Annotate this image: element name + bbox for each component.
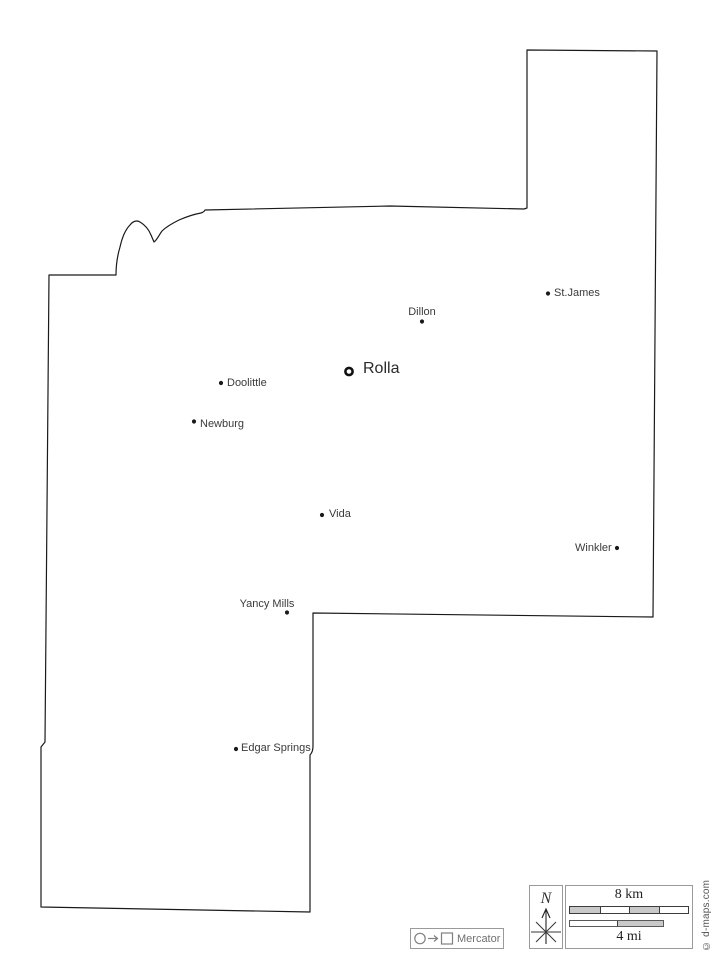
copyright-credit: © d-maps.com: [701, 869, 712, 951]
city-label-vida: Vida: [329, 508, 351, 521]
scale-segment: [659, 907, 689, 913]
city-dot-stjames: [546, 291, 550, 295]
city-label-winkler: Winkler: [575, 542, 612, 555]
scale-segment: [617, 921, 664, 926]
scale-segment: [570, 921, 617, 926]
scale-segment: [600, 907, 630, 913]
county-map-canvas: [0, 0, 713, 957]
city-label-dillon: Dillon: [408, 306, 436, 319]
projection-icon: [411, 929, 455, 948]
scale-bar-km: [569, 906, 689, 914]
map-page: Rolla Dillon St.James Doolittle Newburg …: [0, 0, 713, 957]
city-label-stjames: St.James: [554, 287, 600, 300]
city-dot-edgar-springs: [234, 747, 238, 751]
city-label-doolittle: Doolittle: [227, 377, 267, 390]
county-boundary-outline: [41, 50, 657, 912]
scale-km-label: 8 km: [615, 886, 643, 903]
scale-mi-label: 4 mi: [616, 928, 641, 945]
scale-bar-box: 8 km 4 mi: [565, 885, 693, 949]
scale-segment: [570, 907, 600, 913]
city-dot-doolittle: [219, 381, 223, 385]
north-arrow-icon: N: [530, 886, 562, 948]
city-label-edgar-springs: Edgar Springs: [241, 742, 311, 755]
city-marker-rolla: [345, 368, 352, 375]
projection-box: Mercator: [410, 928, 504, 949]
scale-segment: [629, 907, 659, 913]
city-label-newburg: Newburg: [200, 418, 244, 431]
city-dot-yancy-mills: [285, 610, 289, 614]
scale-bar-mi: [569, 920, 664, 927]
city-dot-newburg: [192, 419, 196, 423]
city-dot-dillon: [420, 319, 424, 323]
north-letter: N: [540, 890, 553, 907]
city-dot-vida: [320, 513, 324, 517]
city-label-yancy-mills: Yancy Mills: [240, 598, 295, 611]
city-label-rolla: Rolla: [363, 362, 399, 375]
projection-label: Mercator: [457, 933, 500, 945]
city-dot-winkler: [615, 546, 619, 550]
north-arrow-box: N: [529, 885, 563, 949]
